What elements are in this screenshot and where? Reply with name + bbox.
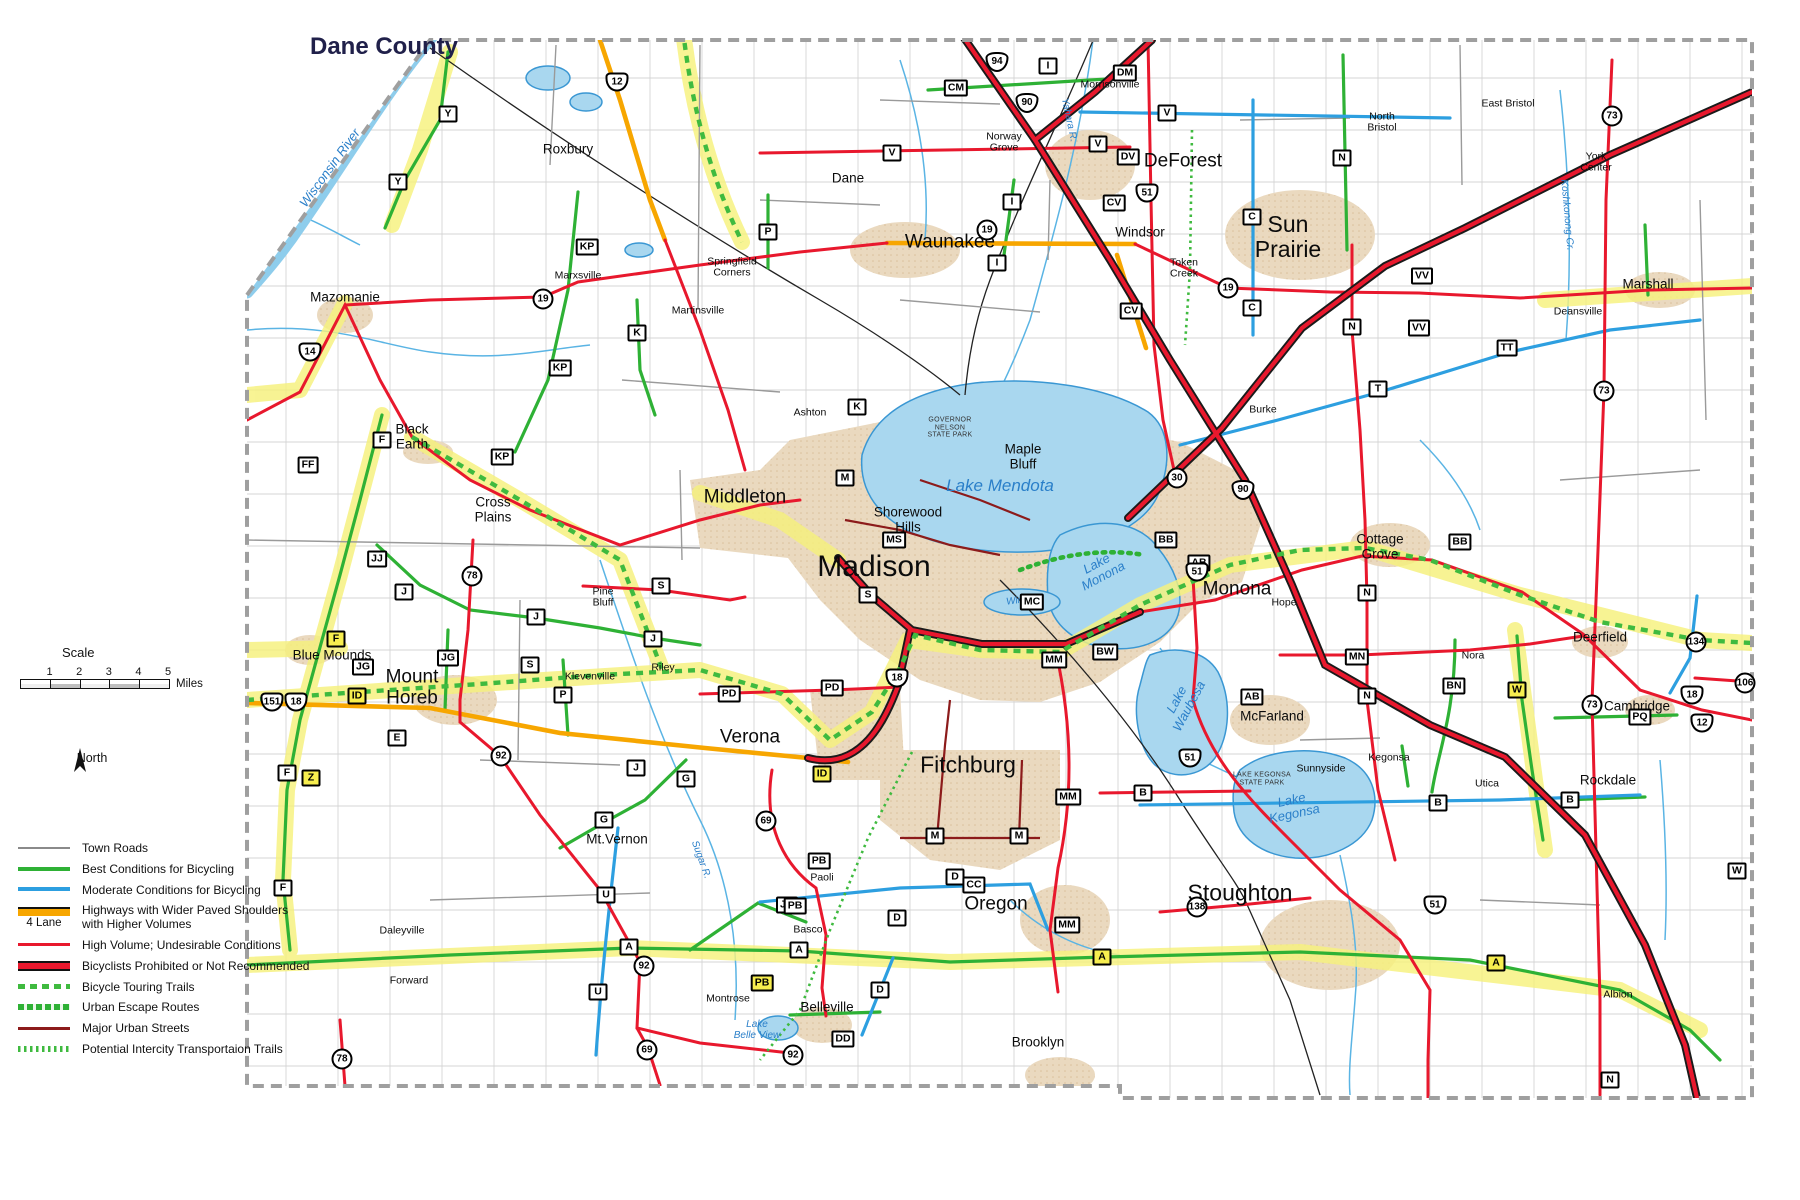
legend-row: Urban Escape Routes bbox=[18, 1001, 309, 1015]
legend-swatch bbox=[18, 961, 70, 973]
legend-row: High Volume; Undesirable Conditions bbox=[18, 939, 309, 953]
legend-row: Moderate Conditions for Bicycling bbox=[18, 884, 309, 898]
legend-swatch bbox=[18, 943, 70, 948]
legend-swatch bbox=[18, 1004, 70, 1012]
scale-unit: Miles bbox=[176, 678, 203, 690]
legend-row: 4 Lane Highways with Wider Paved Shoulde… bbox=[18, 904, 309, 932]
legend-label: Best Conditions for Bicycling bbox=[82, 863, 234, 877]
scale-tick: 4 bbox=[135, 666, 141, 678]
legend-label: High Volume; Undesirable Conditions bbox=[82, 939, 281, 953]
scale-title: Scale bbox=[62, 645, 230, 660]
legend-row: Bicycle Touring Trails bbox=[18, 981, 309, 995]
scale-ruler bbox=[20, 679, 170, 689]
legend-label: Bicyclists Prohibited or Not Recommended bbox=[82, 960, 309, 974]
page-title: Dane County bbox=[310, 33, 458, 61]
scale-tick: 3 bbox=[106, 666, 112, 678]
legend-label: Moderate Conditions for Bicycling bbox=[82, 884, 261, 898]
legend-swatch-note: 4 Lane bbox=[18, 918, 70, 930]
dane-county-bicycle-map: MadisonSun PrairieFitchburgStoughtonMidd… bbox=[0, 0, 1800, 1200]
legend-row: Potential Intercity Transportaion Trails bbox=[18, 1043, 309, 1057]
legend-label: Urban Escape Routes bbox=[82, 1001, 199, 1015]
north-arrow-icon bbox=[72, 748, 88, 774]
scale-tick: 2 bbox=[76, 666, 82, 678]
legend-swatch bbox=[18, 887, 70, 893]
scale-tick: 1 bbox=[47, 666, 53, 678]
legend-swatch bbox=[18, 847, 70, 851]
legend-label: Town Roads bbox=[82, 842, 148, 856]
legend-row: Bicyclists Prohibited or Not Recommended bbox=[18, 960, 309, 974]
legend-row: Best Conditions for Bicycling bbox=[18, 863, 309, 877]
map-legend: Town Roads Best Conditions for Bicycling… bbox=[18, 842, 309, 1064]
legend-label: Bicycle Touring Trails bbox=[82, 981, 195, 995]
legend-swatch bbox=[18, 867, 70, 873]
legend-label: Major Urban Streets bbox=[82, 1022, 189, 1036]
scale-ticks: 12345 bbox=[20, 666, 168, 678]
legend-swatch: 4 Lane bbox=[18, 907, 70, 930]
legend-label: Highways with Wider Paved Shoulders with… bbox=[82, 904, 288, 932]
legend-swatch bbox=[18, 1046, 70, 1054]
scale-widget: Scale 12345 Miles bbox=[20, 645, 230, 690]
legend-row: Major Urban Streets bbox=[18, 1022, 309, 1036]
scale-tick: 5 bbox=[165, 666, 171, 678]
legend-swatch bbox=[18, 1027, 70, 1032]
legend-label: Potential Intercity Transportaion Trails bbox=[82, 1043, 283, 1057]
legend-row: Town Roads bbox=[18, 842, 309, 856]
legend-swatch bbox=[18, 984, 70, 991]
north-indicator: North bbox=[72, 748, 112, 765]
